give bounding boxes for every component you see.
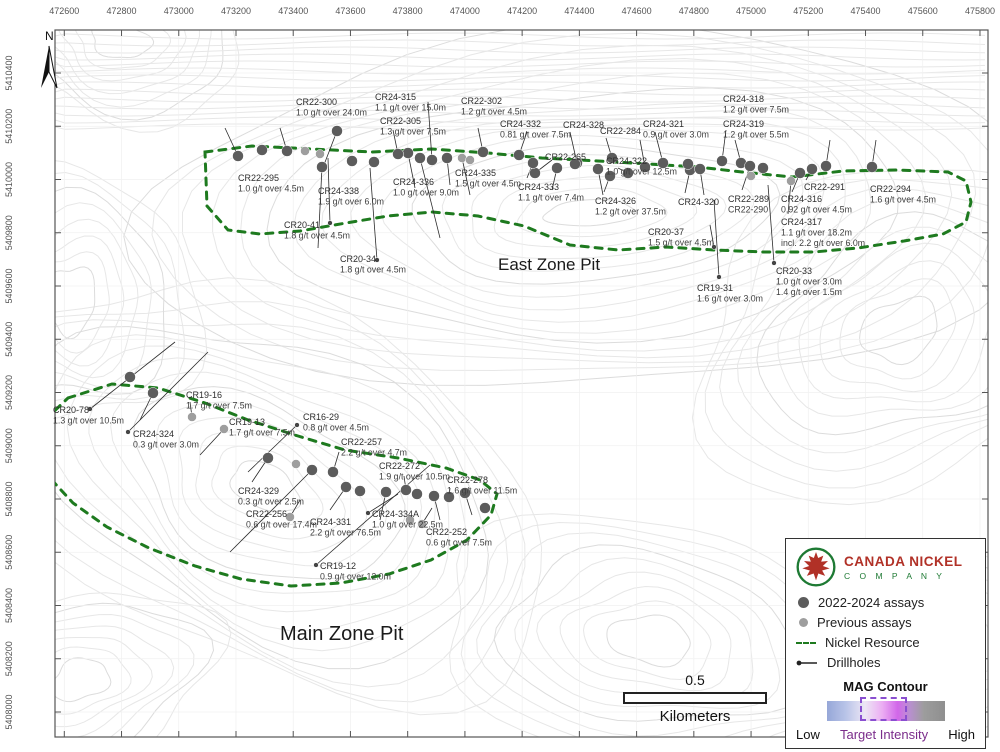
drillhole-label: CR22-295 [238,173,279,183]
drillhole-dot [148,388,159,399]
drillhole-label: CR20-34 [340,254,376,264]
drillhole-dot [366,511,371,516]
drillhole-assay: 0.6 g/t over 7.5m [426,538,492,548]
scale-value: 0.5 [623,672,767,688]
drillhole-dot [347,156,358,167]
drillhole-dot [514,150,525,161]
light-dot-icon [799,618,808,627]
top-axis-tick-label: 473600 [335,6,365,16]
top-axis-tick-label: 474600 [622,6,652,16]
legend-item-label: Drillholes [827,655,880,670]
drillhole-dot [787,177,796,186]
drillhole-assay: 0.9 g/t over 3.0m [643,130,709,140]
top-axis-tick-label: 475000 [736,6,766,16]
mag-target-label: Target Intensity [840,727,928,742]
drillhole-dot [758,163,769,174]
drillhole-label: CR24-316 [781,194,822,204]
drillhole-assay: 1.0 g/t over 3.0m [776,277,842,287]
mag-low-label: Low [796,727,820,742]
drillhole-dot [442,153,453,164]
legend-item-label: 2022-2024 assays [818,595,924,610]
left-axis-tick-label: 5409800 [4,215,14,250]
top-axis-tick-label: 473200 [221,6,251,16]
drillhole-assay: 1.8 g/t over 4.5m [284,231,350,241]
drillhole-dot [314,563,319,568]
mag-high-label: High [948,727,975,742]
drillhole-assay: 1.5 g/t over 4.5m [648,238,714,248]
drillhole-label: CR24-322 [606,156,647,166]
drillhole-label: CR24-338 [318,186,359,196]
drillhole-dot [316,150,325,159]
drillhole-label: CR22-252 [426,527,467,537]
drillhole-label: CR22-300 [296,97,337,107]
drillhole-assay: 1.1 g/t over 7.4m [518,193,584,203]
drillhole-assay: 1.0 g/t over 9.0m [393,188,459,198]
left-axis-tick-label: 5409600 [4,268,14,303]
drillhole-label: CR22-289 [728,194,769,204]
drillhole-assay: 0.3 g/t over 2.5m [238,497,304,507]
drillhole-trace [420,158,440,238]
drillhole-assay: 1.0 g/t over 12.5m [606,167,677,177]
drillhole-label: CR22-302 [461,96,502,106]
drillhole-label: CR24-335 [455,168,496,178]
drillhole-label: CR24-319 [723,119,764,129]
drillhole-assay: 1.6 g/t over 3.0m [697,294,763,304]
drillhole-dot [412,489,423,500]
drillhole-label: CR24-328 [563,120,604,130]
drillhole-assay: 1.5 g/t over 4.5m [455,179,521,189]
drillhole-label: CR22-265 [545,152,586,162]
drillhole-label: CR24-333 [518,182,559,192]
drillhole-assay: 1.2 g/t over 7.5m [723,105,789,115]
main-pit-outline [39,384,497,586]
left-axis-tick-label: 5410000 [4,162,14,197]
top-axis-tick-label: 474200 [507,6,537,16]
drillhole-assay: 0.3 g/t over 3.0m [133,440,199,450]
company-name: CANADA NICKEL [844,554,963,569]
drillhole-label: CR24-315 [375,92,416,102]
maple-leaf-logo-icon [796,547,836,587]
drillhole-assay: 1.1 g/t over 18.2m [781,228,852,238]
drillhole-label: CR20-37 [648,227,684,237]
drillhole-label: CR22-284 [600,126,641,136]
drillhole-assay: 0.8 g/t over 4.5m [303,423,369,433]
drillhole-label: CR24-329 [238,486,279,496]
drillhole-label: CR22-272 [379,461,420,471]
drillhole-dot [328,467,339,478]
drillhole-dot [393,149,404,160]
drillhole-dot [263,453,274,464]
drillhole-label: CR19-12 [320,561,356,571]
company-subtitle: C O M P A N Y [844,571,963,581]
company-logo: CANADA NICKEL C O M P A N Y [796,547,975,587]
drillhole-dot [415,153,426,164]
drillhole-label: CR22-294 [870,184,911,194]
legend-item-label: Previous assays [817,615,912,630]
drillhole-dot [795,168,806,179]
left-axis-tick-label: 5408000 [4,694,14,729]
left-axis-tick-label: 5409000 [4,428,14,463]
left-axis-tick-label: 5410200 [4,109,14,144]
drillhole-label: CR22-257 [341,437,382,447]
left-axis-tick-label: 5409200 [4,375,14,410]
drillhole-assay: 1.0 g/t over 4.5m [238,184,304,194]
drillhole-dot [478,147,489,158]
drillhole-label: CR20-41 [284,220,320,230]
drillhole-dot [381,487,392,498]
drillhole-icon [796,655,818,670]
drillhole-assay: 0.6 g/t over 17.4m [246,520,317,530]
drillhole-dot [695,164,706,175]
top-axis-tick-label: 475600 [908,6,938,16]
drillhole-label: CR24-318 [723,94,764,104]
drillhole-assay: 1.6 g/t over 4.5m [870,195,936,205]
dark-dot-icon [798,597,809,608]
drillhole-assay: 2.2 g/t over 4.7m [341,448,407,458]
drillhole-label: CR24-336 [393,177,434,187]
top-axis-tick-label: 475400 [850,6,880,16]
left-axis-tick-label: 5409400 [4,322,14,357]
drillhole-assay: 2.2 g/t over 76.5m [310,528,381,538]
top-axis-tick-label: 473800 [393,6,423,16]
green-dash-icon [796,642,816,644]
drillhole-label: CR19-16 [186,390,222,400]
drillhole-dot [317,162,328,173]
scale-bar: 0.5 Kilometers [623,672,767,725]
drillhole-assay: 1.8 g/t over 4.5m [340,265,406,275]
drillhole-dot [403,148,414,159]
drillhole-assay: 1.3 g/t over 10.5m [53,416,124,426]
top-axis-tick-label: 475200 [793,6,823,16]
drillhole-label: CR24-321 [643,119,684,129]
drillhole-label: CR20-33 [776,266,812,276]
drillhole-dot [401,485,412,496]
top-axis-tick-label: 474000 [450,6,480,16]
drillhole-label: CR24-320 [678,197,719,207]
top-axis-tick-label: 475800 [965,6,995,16]
drillhole-assay: incl. 2.2 g/t over 6.0m [781,238,865,248]
drillhole-label: CR22-291 [804,182,845,192]
mag-gradient-bar [827,701,945,721]
drillhole-label: CR16-29 [303,412,339,422]
left-axis-tick-label: 5408400 [4,588,14,623]
left-axis-tick-label: 5408200 [4,641,14,676]
drillhole-dot [745,161,756,172]
main-zone-pit-label: Main Zone Pit [280,623,404,645]
drillhole-label: CR24-332 [500,119,541,129]
drillhole-dot [821,161,832,172]
drillhole-assay: 1.9 g/t over 10.5m [379,472,450,482]
left-axis-tick-label: 5410400 [4,55,14,90]
drillhole-dot [480,503,491,514]
mag-contour-title: MAG Contour [796,679,975,694]
drillhole-label: CR24-326 [595,196,636,206]
drillhole-dot [220,425,229,434]
left-axis-tick-label: 5408800 [4,481,14,516]
drillhole-dot [867,162,878,173]
left-axis-tick-label: 5408600 [4,535,14,570]
drillhole-dot [772,261,777,266]
drillhole-dot [683,159,694,170]
drillhole-label: CR24-331 [310,517,351,527]
scale-bar-rect [623,692,767,704]
drillhole-dot [295,423,300,428]
drillhole-label: CR20-78 [53,405,89,415]
drillhole-assay: 1.2 g/t over 4.5m [461,107,527,117]
drillhole-assay: 1.2 g/t over 5.5m [723,130,789,140]
drillhole-dot [427,155,438,166]
legend-item-label: Nickel Resource [825,635,920,650]
drillhole-assay: 0.81 g/t over 7.5m [500,130,571,140]
drillhole-dot [188,413,197,422]
drillhole-dot [429,491,440,502]
legend-item-drillholes: Drillholes [796,655,975,670]
drillhole-dot [528,158,539,169]
top-axis-tick-label: 472600 [49,6,79,16]
drillhole-trace [370,168,377,260]
drillhole-dot [328,221,333,226]
east-zone-pit-label: East Zone Pit [498,255,600,274]
target-intensity-box [860,697,907,721]
drillhole-label: CR24-317 [781,217,822,227]
drillhole-dot [301,147,310,156]
legend-panel: CANADA NICKEL C O M P A N Y 2022-2024 as… [785,538,986,749]
top-axis-tick-label: 473000 [164,6,194,16]
drillhole-dot [369,157,380,168]
drillhole-dot [552,163,563,174]
mag-labels: Low Target Intensity High [796,727,975,742]
drillhole-assay: 1.2 g/t over 37.5m [595,207,666,217]
drillhole-assay: 1.7 g/t over 7.5m [229,428,295,438]
drillhole-assay: 1.4 g/t over 1.5m [776,287,842,297]
drillhole-assay: 1.9 g/t over 6.0m [318,197,384,207]
drillhole-assay: 1.7 g/t over 7.5m [186,401,252,411]
drillhole-dot [332,126,343,137]
drillhole-dot [717,156,728,167]
drillhole-dot [126,430,131,435]
drillhole-assay: 1.0 g/t over 24.0m [296,108,367,118]
top-axis-tick-label: 472800 [107,6,137,16]
drillhole-dot [292,460,301,469]
drillhole-assay: 1.3 g/t over 7.5m [380,127,446,137]
drillhole-assay: 0.92 g/t over 4.5m [781,205,852,215]
north-label: N [45,29,54,43]
drillhole-label: CR22-278 [447,475,488,485]
legend-item-previous-assays: Previous assays [796,615,975,630]
drillhole-dot [466,156,475,165]
top-axis-tick-label: 473400 [278,6,308,16]
drillhole-label: CR24-324 [133,429,174,439]
drillhole-dot [593,164,604,175]
drillhole-dot [282,146,293,157]
drillhole-dot [125,372,136,383]
legend-item-2022-2024-assays: 2022-2024 assays [796,595,975,610]
drillhole-dot [717,275,722,280]
drillhole-dot [355,486,366,497]
drillhole-dot [233,151,244,162]
drillhole-dot [341,482,352,493]
drillhole-label: CR22-256 [246,509,287,519]
scale-unit: Kilometers [623,708,767,725]
drillhole-dot [458,154,467,163]
drillhole-dot [807,164,818,175]
drillhole-label: CR19-31 [697,283,733,293]
drillhole-assay: CR22-290 [728,205,768,215]
drillhole-label: CR22-305 [380,116,421,126]
drillhole-dot [747,172,756,181]
drillhole-dot [257,145,268,156]
drillhole-assay: 0.9 g/t over 12.0m [320,572,391,582]
legend-item-nickel-resource: Nickel Resource [796,635,975,650]
drillhole-label: CR19-13 [229,417,265,427]
top-axis-tick-label: 474800 [679,6,709,16]
top-axis-tick-label: 474400 [564,6,594,16]
drillhole-dot [307,465,318,476]
map-stage: 4726004728004730004732004734004736004738… [0,0,1000,752]
drillhole-label: CR24-334A [372,509,419,519]
drillhole-dot [530,168,541,179]
drillhole-assay: 1.6 g/t over 11.5m [447,486,517,496]
drillhole-assay: 1.1 g/t over 15.0m [375,103,446,113]
